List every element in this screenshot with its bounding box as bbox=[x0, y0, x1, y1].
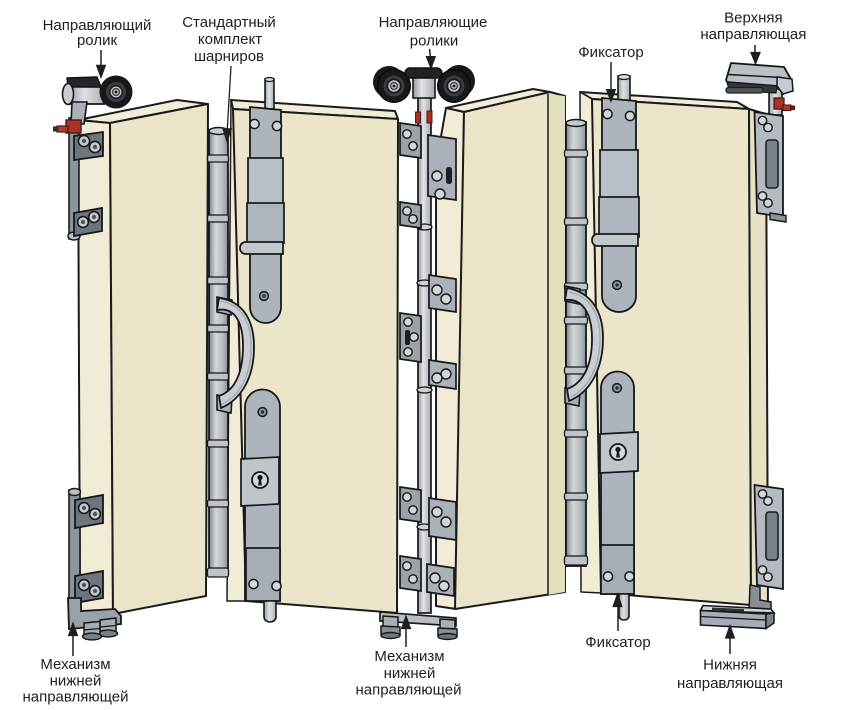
svg-text:Стандартный: Стандартный bbox=[182, 14, 276, 31]
svg-text:комплект: комплект bbox=[198, 31, 262, 48]
svg-text:направляющая: направляющая bbox=[700, 26, 806, 43]
svg-text:ролик: ролик bbox=[77, 32, 117, 49]
svg-text:Направляющие: Направляющие bbox=[379, 14, 488, 31]
svg-text:нижней: нижней bbox=[384, 665, 436, 682]
svg-text:Механизм: Механизм bbox=[374, 648, 444, 665]
svg-text:Верхняя: Верхняя bbox=[724, 9, 783, 26]
svg-text:Фиксатор: Фиксатор bbox=[578, 44, 643, 61]
svg-text:направляющей: направляющей bbox=[22, 689, 128, 706]
svg-text:Фиксатор: Фиксатор bbox=[585, 634, 650, 651]
svg-text:Нижняя: Нижняя bbox=[703, 657, 757, 674]
svg-text:Механизм: Механизм bbox=[40, 656, 110, 673]
svg-text:направляющей: направляющей bbox=[355, 682, 461, 699]
svg-text:шарниров: шарниров bbox=[194, 48, 264, 65]
svg-text:нижней: нижней bbox=[50, 672, 102, 689]
svg-text:ролики: ролики bbox=[410, 32, 458, 49]
svg-text:направляющая: направляющая bbox=[677, 675, 783, 692]
